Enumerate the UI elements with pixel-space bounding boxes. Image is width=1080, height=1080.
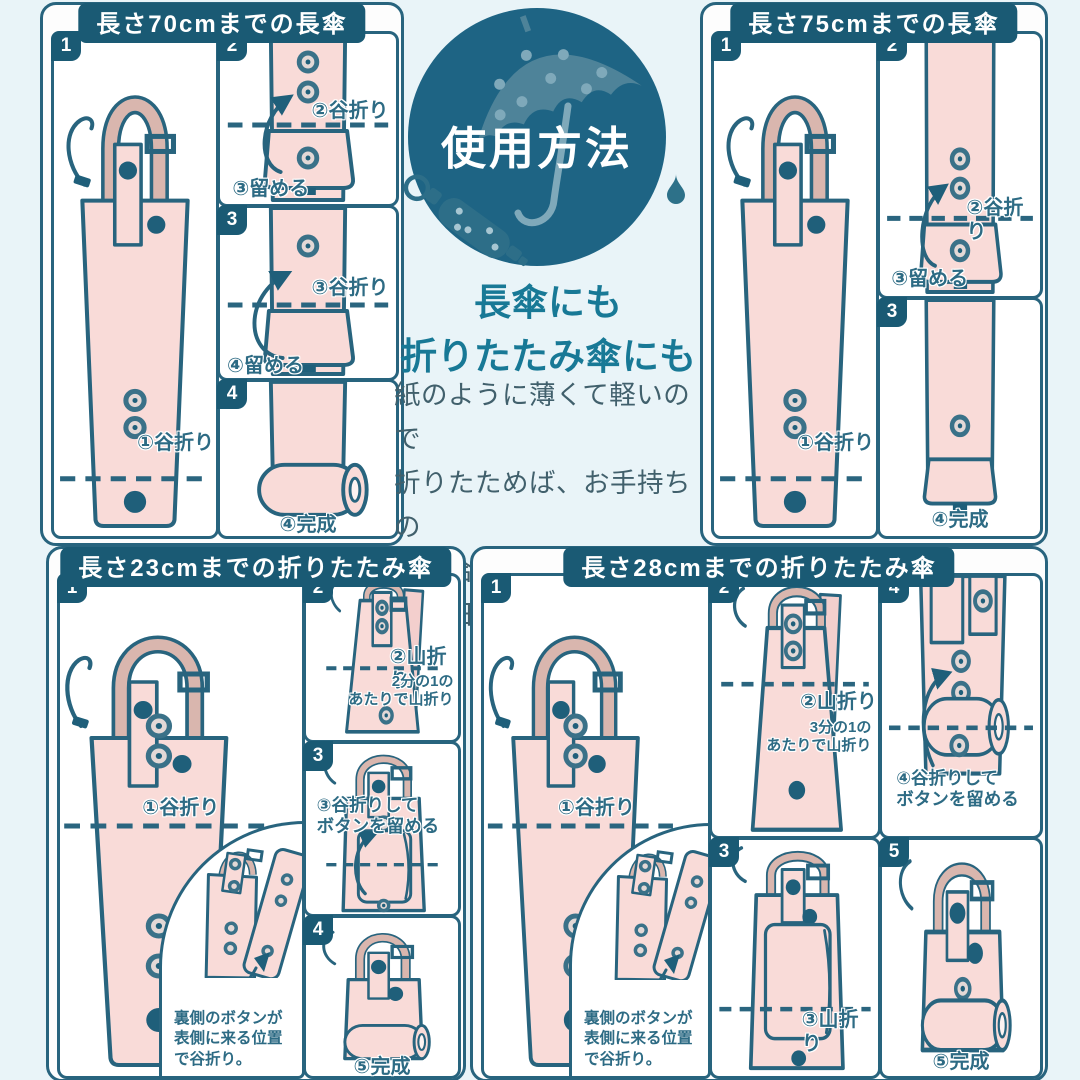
panel-75cm-title: 長さ75cmまでの長傘 (730, 3, 1017, 43)
panel-28cm: 長さ28cmまでの折りたたみ傘 1 ①谷折り (470, 546, 1048, 1080)
fasten-label: ④留める (227, 354, 304, 378)
inset-note: 裏側のボタンが 表側に来る位置 で谷折り。 (584, 1009, 693, 1070)
done-label: ⑤完成 (354, 1055, 411, 1079)
inset-note: 裏側のボタンが 表側に来る位置 で谷折り。 (174, 1009, 283, 1070)
step-box-23-4: 4 ⑤完成 (303, 915, 461, 1079)
step-box-75-3: 3 ④完成 (877, 297, 1043, 539)
step-box-70-3: 3 ③谷折り ④留める (217, 205, 399, 381)
step-box-28-3: 3 ③山折り (709, 837, 881, 1079)
folded-umbrella-icon (400, 168, 534, 277)
fold-label: ①谷折り (142, 796, 219, 820)
step-box-75-1: 1 ①谷折り (711, 31, 879, 539)
fold-label: ②山折り (800, 690, 877, 714)
instruction-sheet: 長さ70cmまでの長傘 1 ①谷折り 2 (0, 0, 1080, 1080)
fold-back-inset: 裏側のボタンが 表側に来る位置 で谷折り。 (159, 821, 305, 1079)
step-number-tab: 3 (877, 297, 907, 327)
step-box-28-2: 2 ②山折り 3分の1の あたりで山折り (709, 573, 881, 839)
step-box-28-4: 4 ④谷折りして ボタンを留める (879, 573, 1043, 839)
step-number-tab: 1 (51, 31, 81, 61)
fold-label: ②谷折り (966, 196, 1040, 244)
step-box-23-1: 1 ①谷折り (57, 573, 305, 1079)
fold-fasten-label: ④谷折りして ボタンを留める (896, 768, 1019, 810)
done-label: ④完成 (932, 508, 989, 532)
done-label: ⑤完成 (933, 1050, 990, 1074)
panel-23cm: 長さ23cmまでの折りたたみ傘 1 ①谷折り (46, 546, 466, 1080)
step-number-tab: 3 (303, 741, 333, 771)
folded-complete-illustration (880, 300, 1040, 536)
step-box-28-1: 1 ①谷折り (481, 573, 711, 1079)
step-number-tab: 1 (481, 573, 511, 603)
fold-label: ③山折り (802, 1008, 878, 1056)
cover-insert-illustration (714, 34, 876, 536)
panel-23cm-title: 長さ23cmまでの折りたたみ傘 (60, 547, 451, 587)
step-box-23-2: 2 ②山折り 2分の1の あたりで山折り (303, 573, 461, 743)
panel-70cm-title: 長さ70cmまでの長傘 (78, 3, 365, 43)
usage-badge: 使用方法 (408, 8, 666, 266)
step-box-70-4: 4 ④完成 (217, 379, 399, 539)
panel-28cm-title: 長さ28cmまでの折りたたみ傘 (563, 547, 954, 587)
done-label: ④完成 (280, 513, 337, 537)
fold-label: ①谷折り (558, 796, 635, 820)
usage-badge-title: 使用方法 (408, 112, 666, 177)
raindrop-icon (666, 174, 686, 206)
fold-note: 2分の1の あたりで山折り (348, 673, 453, 709)
fold-back-illustration (569, 830, 711, 980)
fasten-label: ③留める (891, 267, 968, 291)
panel-75cm: 長さ75cmまでの長傘 1 ①谷折り 2 (700, 2, 1048, 546)
step-number-tab: 4 (303, 915, 333, 945)
step-box-28-5: 5 ⑤完成 (879, 837, 1043, 1079)
step-box-70-2: 2 ②谷折り ③留める (217, 31, 399, 207)
headline: 長傘にも 折りたたみ傘にも (398, 276, 698, 383)
fold-label: ③谷折り (312, 276, 389, 300)
fold-up-illustration (880, 34, 1040, 296)
fold-back-illustration (159, 828, 305, 978)
step-number-tab: 5 (879, 837, 909, 867)
fold-label: ①谷折り (137, 431, 214, 455)
step-box-70-1: 1 ①谷折り (51, 31, 219, 539)
headline-line1: 長傘にも (398, 276, 698, 330)
fold-label: ②谷折り (312, 99, 389, 123)
step-box-75-2: 2 ②谷折り ③留める (877, 31, 1043, 299)
fasten-label: ③留める (232, 177, 309, 201)
fold-back-inset: 裏側のボタンが 表側に来る位置 で谷折り。 (569, 823, 711, 1079)
step-box-23-3: 3 ③谷折りして ボタンを留める (303, 741, 461, 917)
fold-note: 3分の1の あたりで山折り (766, 719, 871, 755)
small-complete-illustration (882, 840, 1040, 1076)
step-number-tab: 3 (709, 837, 739, 867)
panel-70cm: 長さ70cmまでの長傘 1 ①谷折り 2 (40, 2, 404, 546)
cover-insert-illustration (54, 34, 216, 536)
fold-fasten-label: ③谷折りして ボタンを留める (317, 795, 440, 837)
step-number-tab: 4 (217, 379, 247, 409)
fold-label: ①谷折り (797, 431, 874, 455)
step-number-tab: 3 (217, 205, 247, 235)
